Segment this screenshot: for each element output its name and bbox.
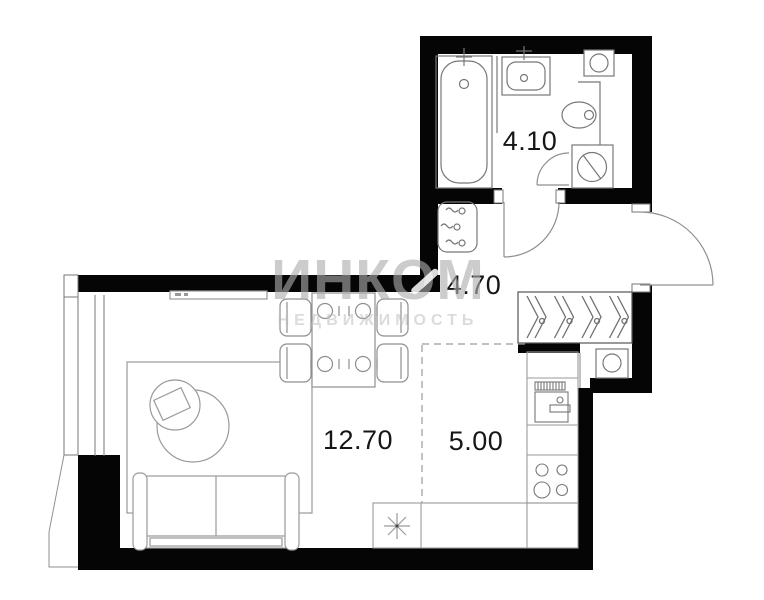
dish-rack <box>535 382 565 390</box>
chair <box>377 344 408 382</box>
washer-niche-door-arc <box>537 153 569 185</box>
entrance-door <box>640 212 713 285</box>
squiggle-2 <box>441 224 453 228</box>
entrance-frame-top <box>632 204 650 212</box>
kitchen-area-label: 5.00 <box>449 426 504 456</box>
wall-left-pier <box>78 455 120 550</box>
apartment-floorplan: 4.10 4.70 12.70 5.00 <box>0 0 764 600</box>
chair <box>377 299 408 336</box>
sink-star-icon <box>384 513 410 539</box>
wall-step <box>590 378 652 393</box>
dining-table <box>312 293 375 387</box>
kitchen-sink <box>535 392 570 422</box>
wall-bottom <box>78 548 593 570</box>
toilet <box>562 102 596 128</box>
bathroom-door <box>504 202 559 257</box>
bath-door-frame-right <box>556 190 565 203</box>
bath-door-frame-left <box>494 190 503 203</box>
dining-set <box>280 293 408 387</box>
washbasin-drain <box>521 75 528 82</box>
chair <box>280 299 311 336</box>
door-frames <box>494 190 650 292</box>
wardrobe <box>518 292 632 343</box>
exterior-outline <box>49 455 78 567</box>
wall-bathroom-top <box>420 36 652 54</box>
toilet-niche-line <box>578 82 600 147</box>
wall-bathroom-bottom-right <box>558 188 652 204</box>
coffee-table <box>150 380 200 430</box>
wall-bathroom-right <box>632 36 652 212</box>
floorplan-canvas: 4.10 4.70 12.70 5.00 ИНКОМ НЕДВИЖИМОСТЬ <box>0 0 764 600</box>
bathtub <box>436 48 492 188</box>
stove <box>534 464 568 498</box>
squiggle-1 <box>446 208 458 212</box>
wall-living-top <box>78 275 440 292</box>
wall-hall-left <box>420 36 438 292</box>
tv-console <box>170 291 267 299</box>
zone-dividers <box>422 344 527 503</box>
wall-endcap <box>64 275 78 297</box>
wall-kitchen-right <box>578 388 593 570</box>
sofa <box>133 473 299 550</box>
kitchen-counter-strip <box>527 352 578 503</box>
bathroom-door-swing-arc <box>504 202 559 257</box>
squiggle-3 <box>446 240 458 244</box>
washing-machine <box>572 145 613 188</box>
hallway-area-label: 4.70 <box>447 270 502 300</box>
window-sill <box>64 297 78 455</box>
chair <box>280 344 311 382</box>
wall-right-below-entrance <box>632 285 652 393</box>
bathroom-area-label: 4.10 <box>503 126 558 156</box>
entrance-door-swing-arc <box>640 212 713 285</box>
bathroom-fixtures <box>436 46 614 188</box>
living-area-label: 12.70 <box>323 425 393 455</box>
washer-niche-door <box>537 153 569 185</box>
vent-shaft-bathroom <box>584 50 614 76</box>
bathtub-drain <box>460 80 469 89</box>
hallway-appliance-unit <box>438 202 477 252</box>
